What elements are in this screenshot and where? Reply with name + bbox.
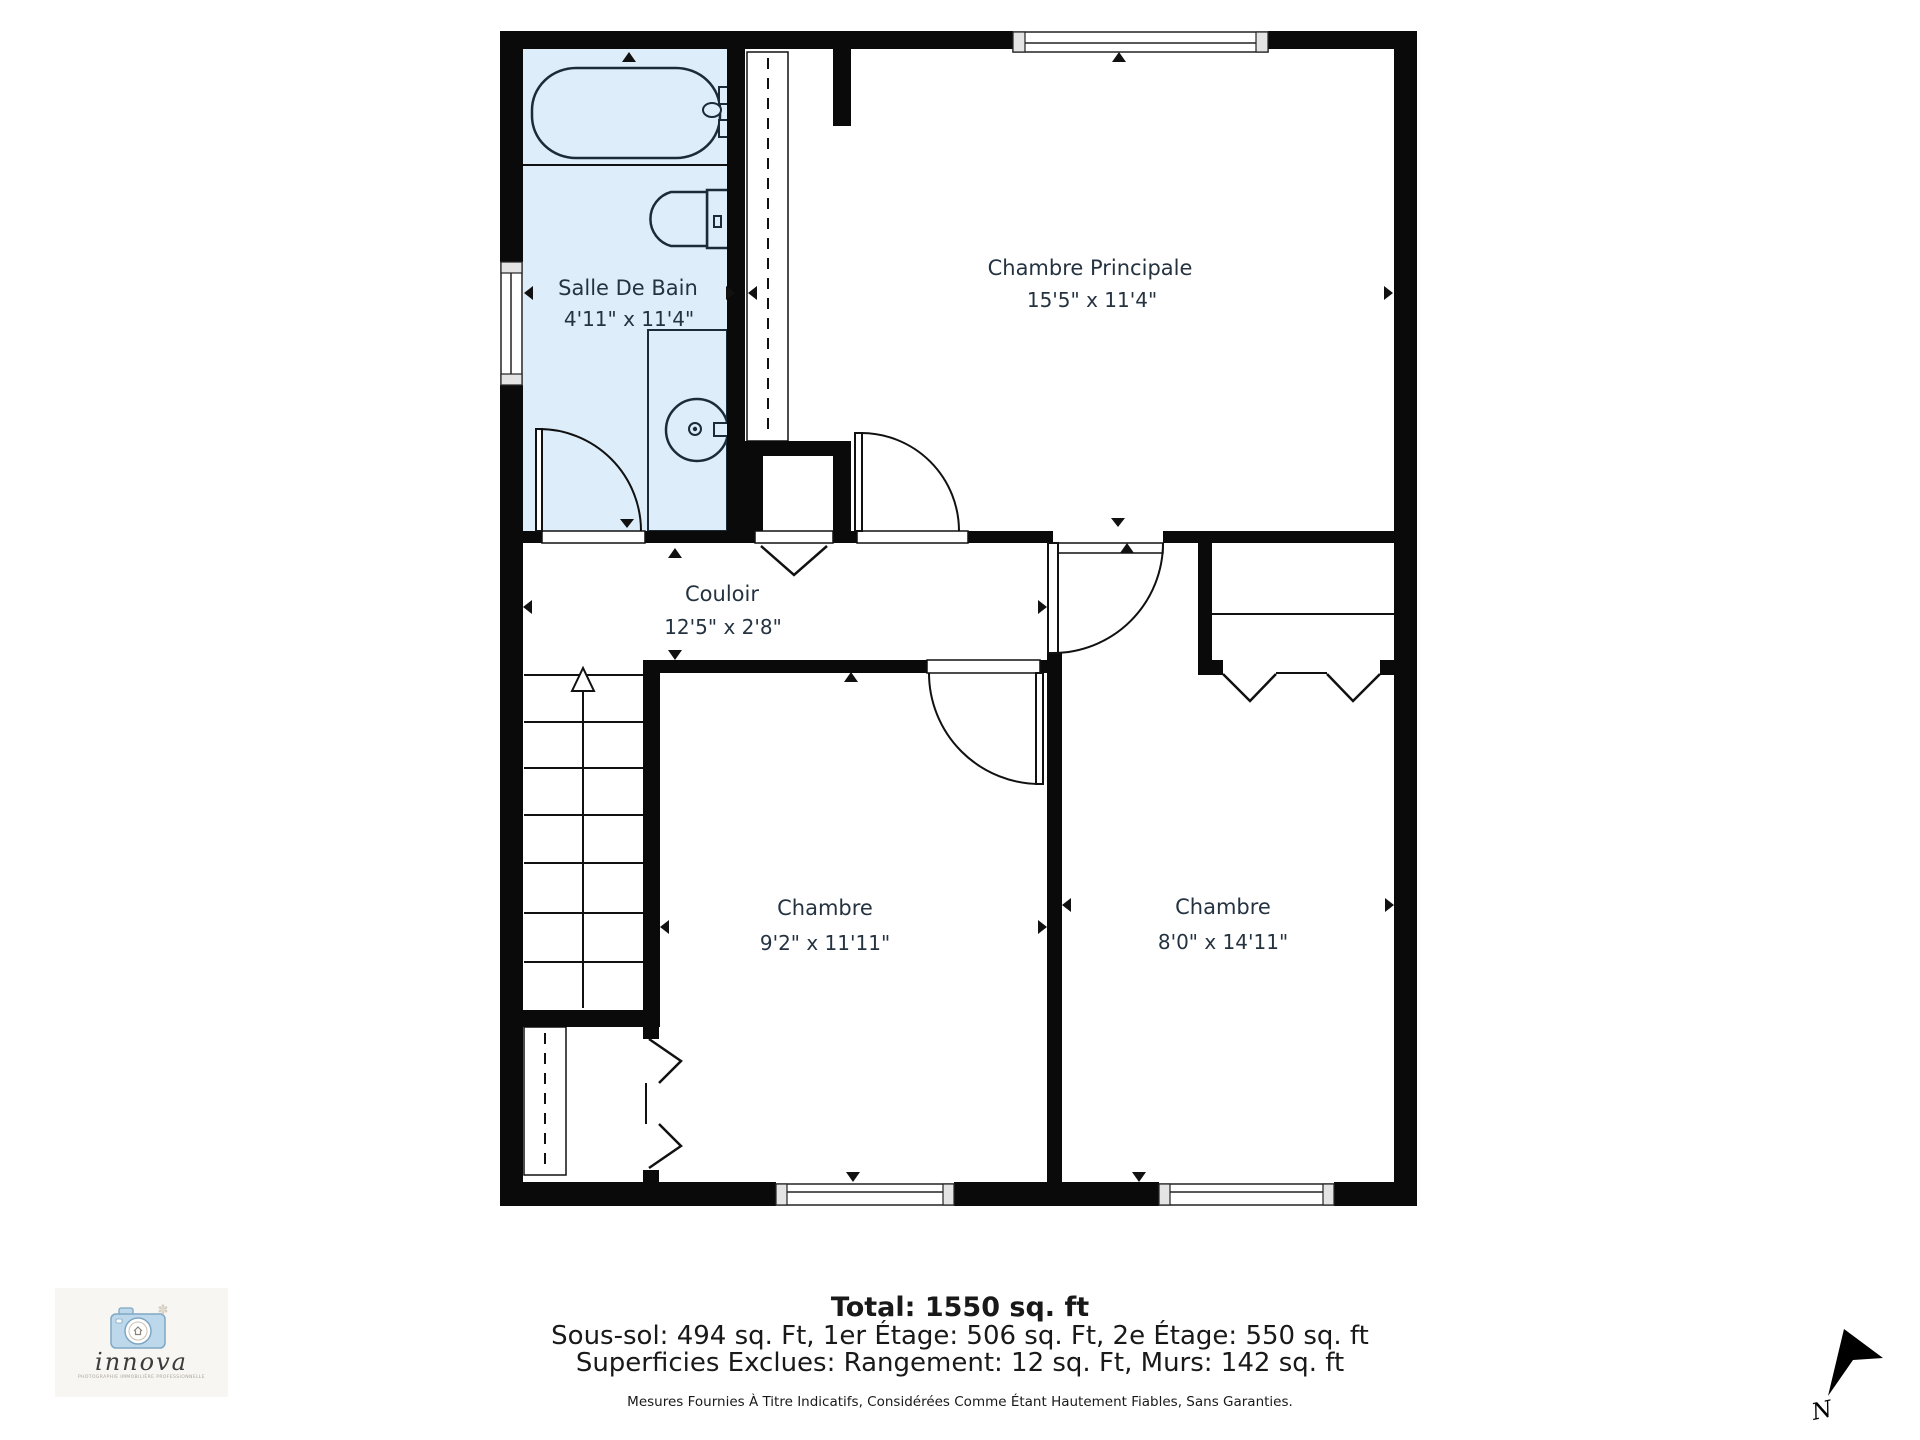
disclaimer-text: Mesures Fournies À Titre Indicatifs, Con… bbox=[0, 1394, 1920, 1410]
master-door-threshold bbox=[857, 531, 968, 543]
stairs-up-arrow-icon bbox=[572, 668, 594, 691]
camera-icon: ✽ bbox=[107, 1302, 177, 1352]
excluded-area-text: Superficies Exclues: Rangement: 12 sq. F… bbox=[0, 1348, 1920, 1378]
floorplan-drawing bbox=[0, 0, 1920, 1440]
bedroom2-door bbox=[1048, 543, 1163, 653]
bedroom2-door-threshold bbox=[1053, 543, 1163, 553]
room-dims-chambre-principale: 15'5" x 11'4" bbox=[1027, 288, 1157, 312]
opening-chevron-icon bbox=[761, 546, 827, 575]
sink-vanity-icon bbox=[648, 330, 728, 531]
room-label-chambre-2: Chambre bbox=[1175, 895, 1271, 919]
levels-area-text: Sous-sol: 494 sq. Ft, 1er Étage: 506 sq.… bbox=[0, 1321, 1920, 1351]
room-label-salle-de-bain: Salle De Bain bbox=[558, 276, 698, 300]
window-top bbox=[1013, 32, 1268, 52]
north-arrow: N bbox=[1790, 1310, 1910, 1430]
stairs bbox=[524, 668, 643, 1008]
storage-bifold-doors bbox=[646, 1039, 681, 1168]
bedroom1-door bbox=[929, 673, 1043, 784]
room-dims-couloir: 12'5" x 2'8" bbox=[664, 615, 782, 639]
room-dims-chambre-2: 8'0" x 14'11" bbox=[1158, 930, 1288, 954]
logo-tagline-text: PHOTOGRAPHIE IMMOBILIÈRE PROFESSIONNELLE bbox=[78, 1375, 205, 1380]
storage-closet bbox=[524, 1027, 566, 1175]
north-arrow-icon bbox=[1790, 1310, 1910, 1430]
total-area-text: Total: 1550 sq. ft bbox=[0, 1292, 1920, 1323]
room-dims-chambre-1: 9'2" x 11'11" bbox=[760, 931, 890, 955]
room-label-chambre-1: Chambre bbox=[777, 896, 873, 920]
floorplan-page: Salle De Bain 4'11" x 11'4" Chambre Prin… bbox=[0, 0, 1920, 1440]
bedroom2-closet-bifold-doors bbox=[1223, 673, 1380, 701]
bathtub-icon bbox=[532, 68, 728, 158]
toilet-icon bbox=[650, 190, 729, 248]
cased-opening bbox=[755, 531, 833, 543]
innova-logo: ✽ innova PHOTOGRAPHIE IMMOBILIÈRE PROFES… bbox=[55, 1288, 228, 1397]
logo-brand-text: innova bbox=[95, 1352, 188, 1372]
flower-icon: ✽ bbox=[157, 1303, 168, 1318]
window-bottom-left bbox=[776, 1184, 954, 1205]
window-left bbox=[501, 262, 522, 385]
room-label-chambre-principale: Chambre Principale bbox=[988, 256, 1193, 280]
window-bottom-right bbox=[1159, 1184, 1334, 1205]
bedroom1-door-threshold bbox=[927, 660, 1040, 673]
bathroom-door-threshold bbox=[542, 531, 645, 543]
master-closet bbox=[747, 52, 788, 441]
master-bedroom-door bbox=[855, 433, 959, 531]
room-label-couloir: Couloir bbox=[685, 582, 759, 606]
room-dims-salle-de-bain: 4'11" x 11'4" bbox=[564, 307, 694, 331]
